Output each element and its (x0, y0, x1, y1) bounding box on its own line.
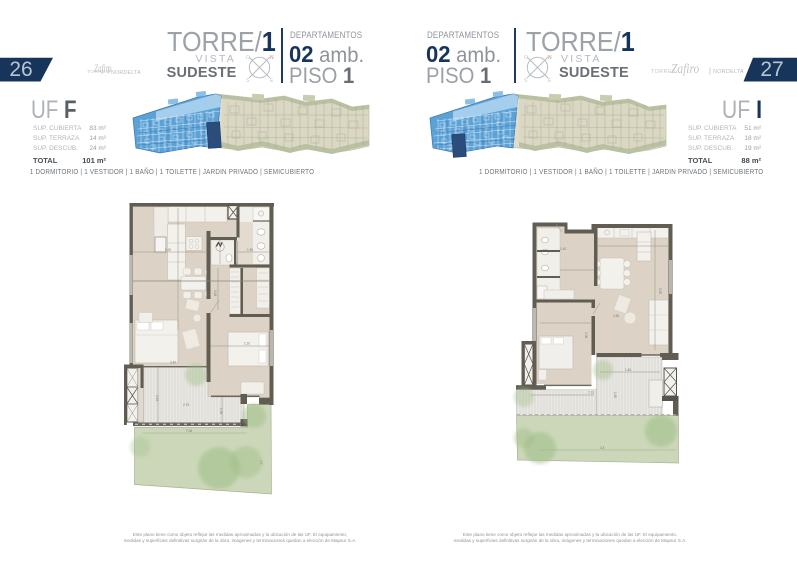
svg-text:1.10: 1.10 (244, 342, 250, 346)
svg-text:2.08: 2.08 (584, 332, 588, 338)
svg-text:3.18: 3.18 (213, 290, 217, 296)
svg-text:5.20: 5.20 (165, 248, 171, 252)
svg-text:2.75: 2.75 (183, 403, 189, 407)
svg-text:2.34: 2.34 (155, 395, 159, 401)
svg-text:1.40: 1.40 (560, 247, 566, 251)
svg-text:3.4: 3.4 (600, 446, 605, 450)
svg-text:7.06: 7.06 (186, 429, 192, 433)
svg-text:1.90: 1.90 (247, 248, 253, 252)
svg-text:3.90: 3.90 (658, 288, 662, 294)
svg-text:7.72: 7.72 (588, 391, 594, 395)
svg-text:1.85: 1.85 (613, 392, 617, 398)
svg-text:1.46: 1.46 (625, 368, 631, 372)
svg-text:1.38: 1.38 (219, 408, 223, 414)
svg-text:3.40: 3.40 (170, 361, 176, 365)
svg-text:1.60: 1.60 (613, 314, 619, 318)
